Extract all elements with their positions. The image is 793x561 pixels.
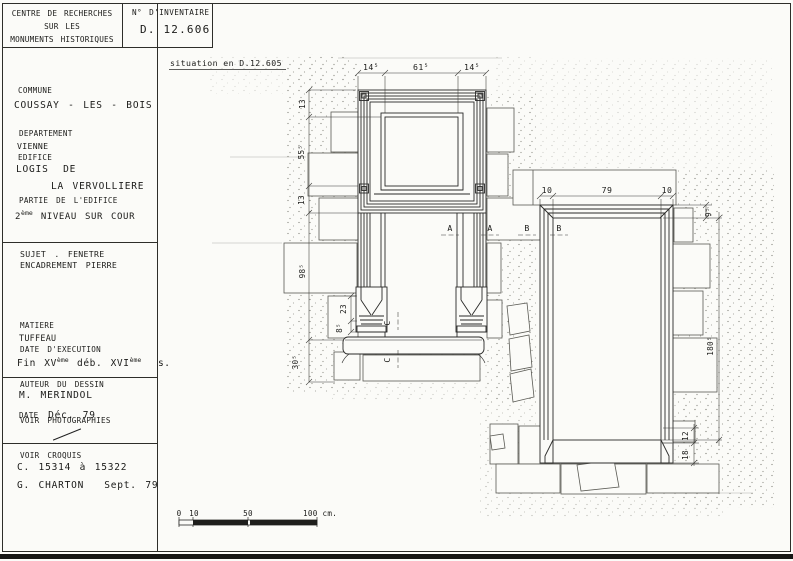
edifice-value-line1: LOGIS DE — [16, 165, 76, 175]
dim-label: 98⁵ — [298, 264, 307, 279]
dim-label: 180⁵ — [706, 336, 715, 356]
dim-label: 18 — [681, 450, 690, 460]
org-line: SUR LES — [6, 20, 118, 33]
header-org-box: CENTRE DE RECHERCHES SUR LES MONUMENTS H… — [6, 7, 118, 46]
surveyor-name: G. CHARTON — [17, 480, 84, 491]
auteur-label: AUTEUR DU DESSIN — [20, 381, 104, 389]
partie-rest: NIVEAU SUR COUR — [41, 212, 135, 222]
scale-tick-label: 0 — [177, 509, 182, 518]
inventory-label: N° D'INVENTAIRE — [132, 9, 209, 17]
rubble-stone — [507, 303, 530, 335]
date-exec-sup: ème — [57, 356, 69, 364]
sidebar-rule-2 — [2, 377, 157, 378]
sheet-border-right — [790, 3, 791, 552]
voir-photographies-label: VOIR PHOTOGRAPHIES — [20, 417, 111, 425]
commune-value: COUSSAY - LES - BOIS — [14, 101, 152, 111]
dim-label: 79 — [602, 185, 613, 195]
dim-label: 9⁵ — [704, 207, 713, 217]
left-window-drawing — [342, 90, 487, 363]
surveyor-date: Sept. 79 — [104, 480, 158, 491]
drawing-area: 14⁵ 61⁵ 14⁵ 13 55⁵ 13 98⁵ 30⁵ 23 8⁵ A A … — [0, 0, 793, 561]
dim-label: 30⁵ — [291, 355, 300, 370]
date-exec-part: Fin XV — [17, 358, 57, 369]
rubble-stone — [509, 335, 532, 371]
sujet-line1: SUJET . FENETRE — [20, 250, 104, 259]
scale-bar: 0 10 50 100 cm. — [177, 509, 338, 527]
date-exec-part: déb. XVI — [77, 358, 130, 369]
sidebar-rule-3 — [2, 443, 157, 444]
dim-label: 55⁵ — [297, 145, 306, 160]
section-label-b: B — [556, 223, 561, 233]
commune-label: COMMUNE — [18, 87, 52, 95]
surveyor-line: G. CHARTONSept. 79 — [17, 481, 158, 491]
edifice-label: EDIFICE — [18, 154, 52, 162]
dim-label: 23 — [339, 304, 348, 314]
voir-croquis-label: VOIR CROQUIS — [20, 452, 81, 460]
dim-label: 14⁵ — [363, 62, 379, 72]
header-divider-right — [212, 3, 213, 47]
dim-label: 8⁵ — [335, 323, 344, 333]
rubble-stone — [490, 434, 505, 450]
org-line: CENTRE DE RECHERCHES — [6, 7, 118, 20]
survey-sheet: 14⁵ 61⁵ 14⁵ 13 55⁵ 13 98⁵ 30⁵ 23 8⁵ A A … — [0, 0, 793, 561]
sheet-bottom-rule — [0, 554, 793, 559]
org-line: MONUMENTS HISTORIQUES — [6, 33, 118, 46]
right-jamb-base — [456, 287, 487, 332]
date-exec-sup: ème — [130, 356, 142, 364]
partie-label: PARTIE DE L'EDIFICE — [19, 197, 118, 205]
sheet-border-left — [2, 3, 3, 552]
scale-tick-label: 100 cm. — [303, 509, 337, 518]
dim-label: 13 — [297, 195, 306, 205]
right-window-drawing — [540, 205, 673, 463]
dim-label: 10 — [542, 185, 553, 195]
section-label-c: C — [382, 320, 392, 325]
dim-label: 13 — [298, 99, 307, 109]
sujet-line2: ENCADREMENT PIERRE — [20, 261, 117, 270]
matiere-label: MATIERE — [20, 322, 54, 330]
departement-label: DEPARTEMENT — [19, 130, 73, 138]
header-divider-mid — [122, 3, 123, 47]
scale-tick-label: 50 — [243, 509, 253, 518]
section-label-a: A — [447, 223, 452, 233]
situation-note: situation en D.12.605 — [169, 58, 286, 70]
header-bottom-rule — [2, 47, 213, 48]
croquis-refs: C. 15314 à 15322 — [17, 463, 127, 473]
rubble-stone — [510, 369, 534, 402]
rubble-stone — [577, 460, 619, 491]
sheet-border-bottom — [2, 551, 791, 552]
situation-text: situation en D.12.605 — [170, 58, 282, 68]
auteur-value: M. MERINDOL — [19, 391, 93, 401]
dim-label: 12 — [681, 431, 690, 441]
dim-label: 14⁵ — [464, 62, 480, 72]
section-label-b: B — [524, 223, 529, 233]
edifice-value-line2: LA VERVOLLIERE — [51, 182, 144, 192]
dim-label: 10 — [662, 185, 673, 195]
partie-value: 2ème NIVEAU SUR COUR — [15, 210, 135, 223]
dim-label: 61⁵ — [413, 62, 429, 72]
inventory-number: D. 12.606 — [140, 24, 210, 36]
sheet-border-top — [2, 3, 791, 4]
scale-tick-label: 10 — [189, 509, 199, 518]
departement-value: VIENNE — [17, 142, 48, 151]
section-label-a: A — [487, 223, 492, 233]
partie-sup: ème — [21, 209, 33, 217]
matiere-value: TUFFEAU — [19, 334, 56, 343]
sidebar-divider — [157, 3, 158, 552]
sidebar-rule-1 — [2, 242, 157, 243]
date-exec-part: s. — [158, 358, 171, 369]
date-execution-label: DATE D'EXECUTION — [20, 346, 101, 354]
section-label-c: C — [382, 357, 392, 362]
date-execution-value: Fin XVème déb. XVIème s. — [17, 357, 171, 370]
